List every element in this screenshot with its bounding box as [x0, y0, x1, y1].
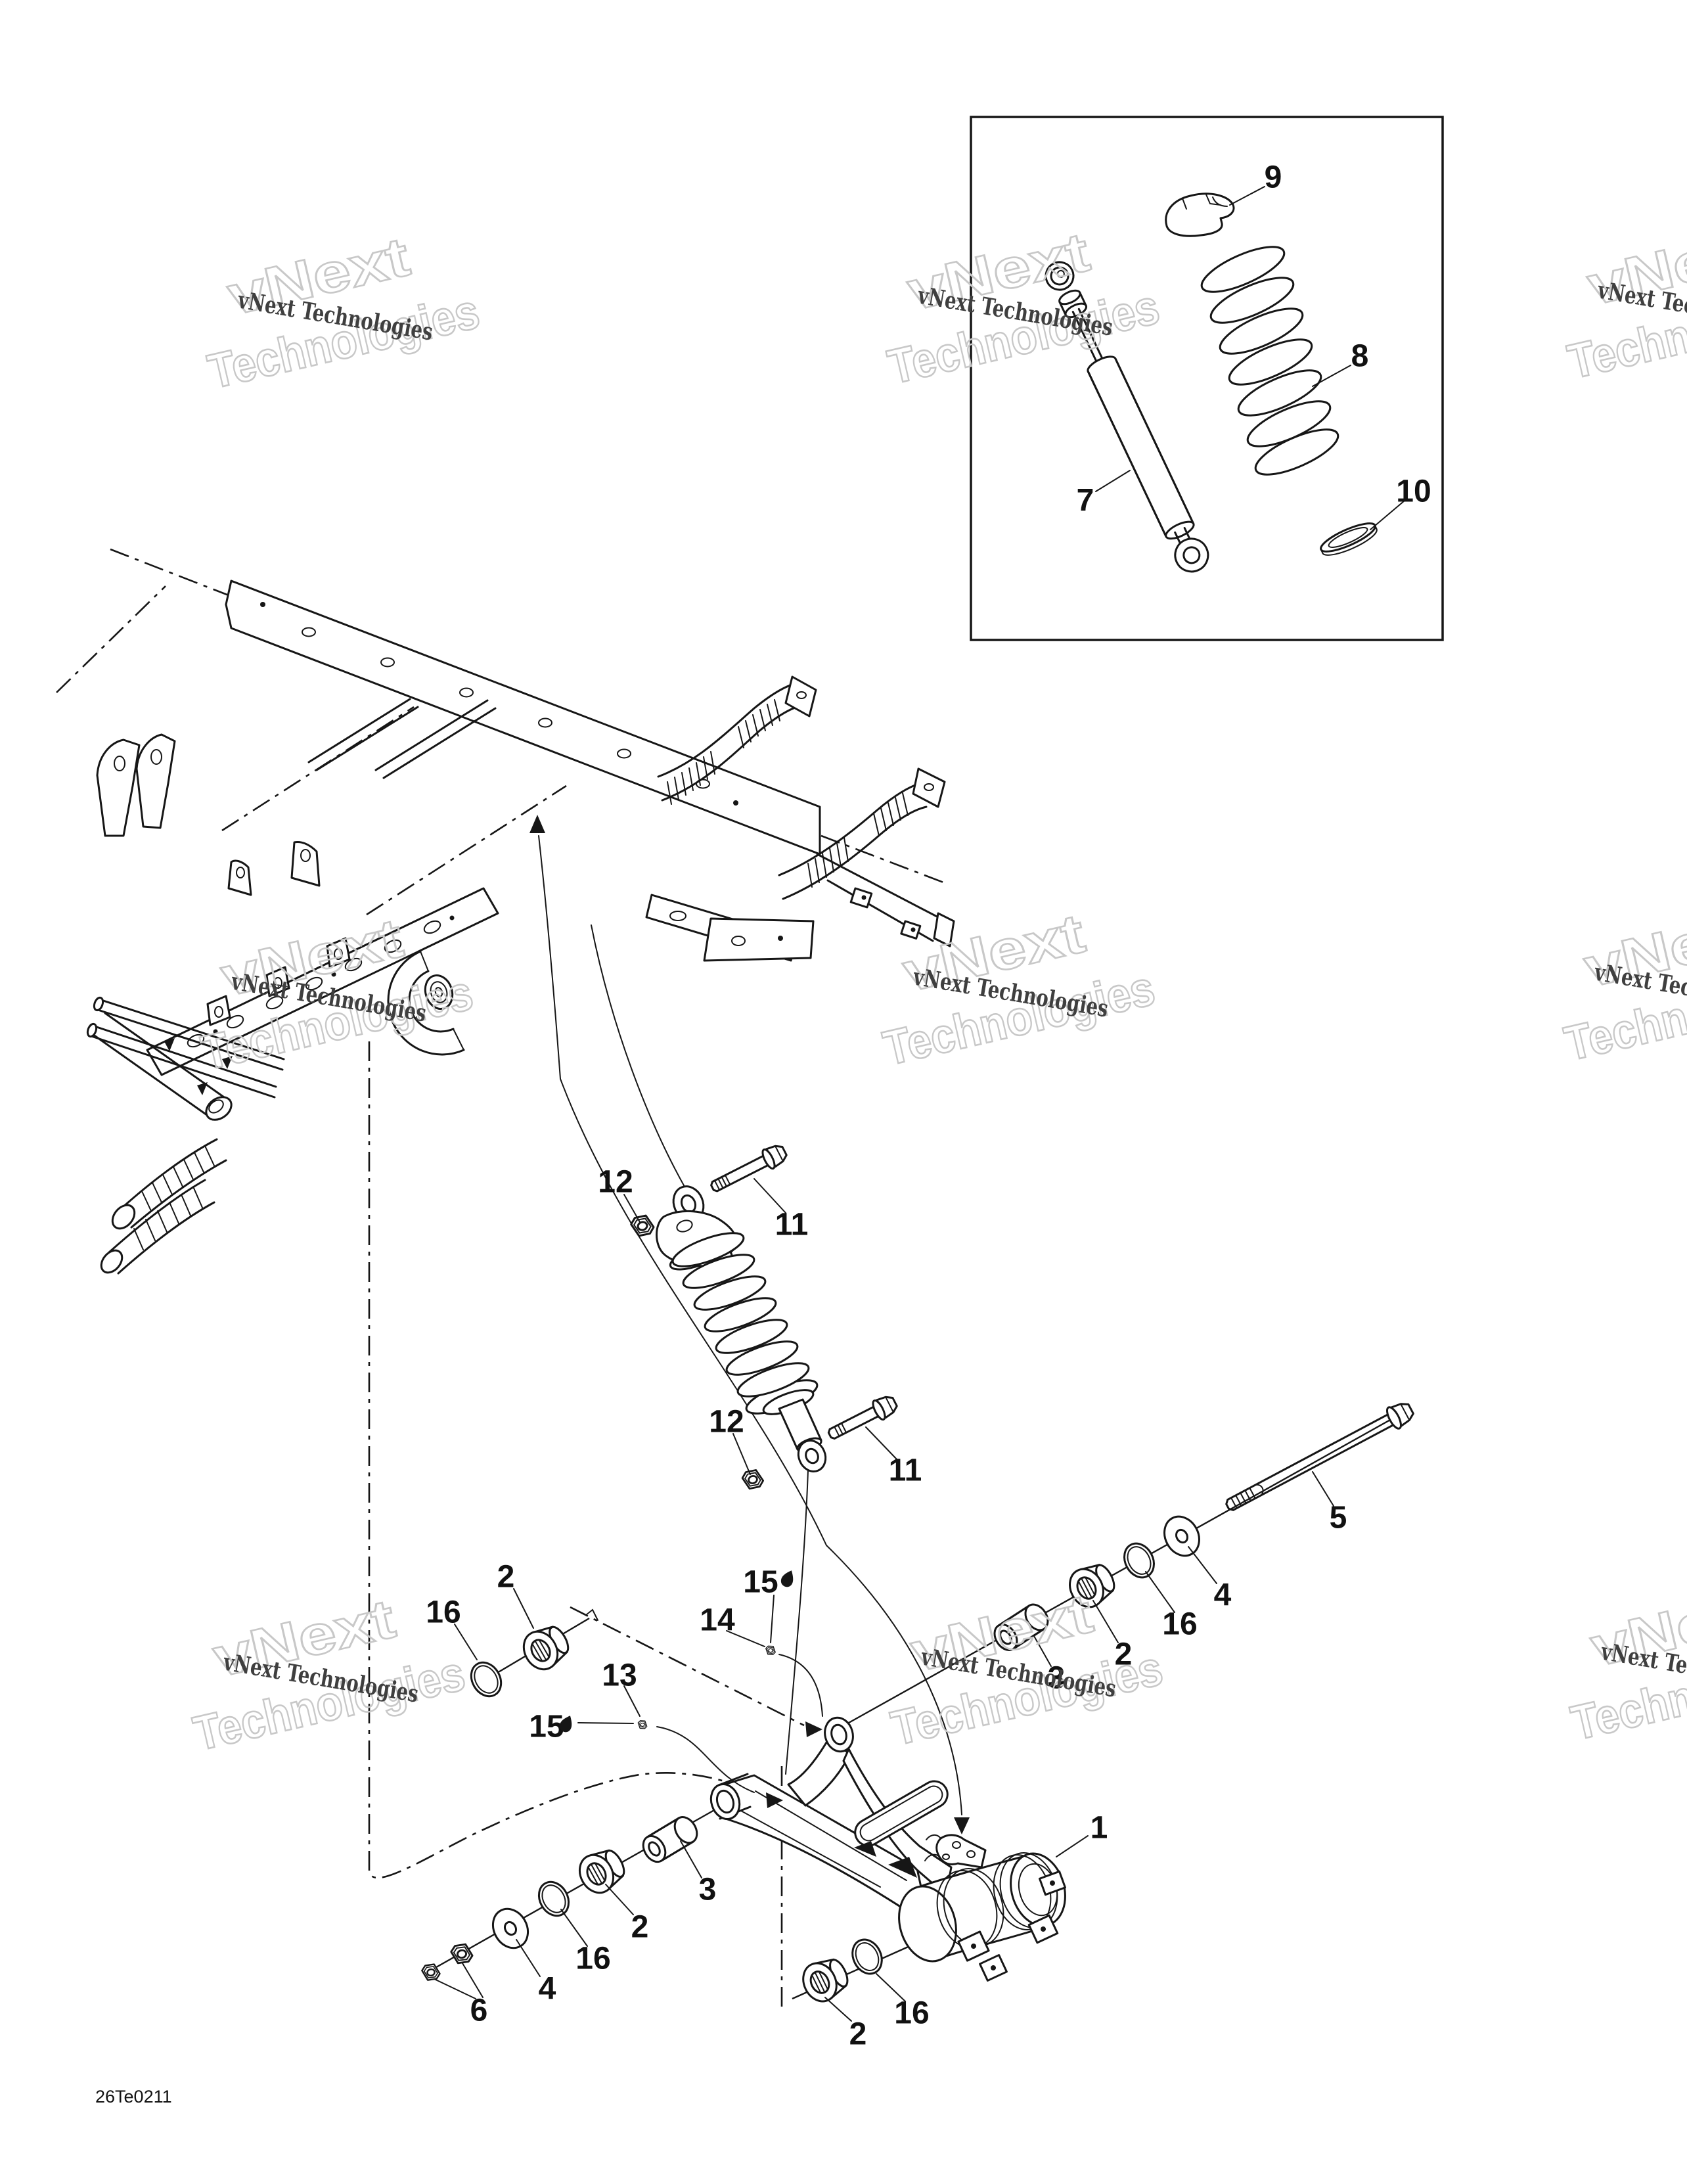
watermark: vNextTechnologiesvNext Technologies	[1546, 203, 1687, 390]
part-callout-1: 1	[1091, 1811, 1108, 1846]
watermark: vNextTechnologiesvNext Technologies	[1550, 1564, 1687, 1751]
shock-bolt-bottom	[825, 1392, 899, 1444]
part-callout-2: 2	[631, 1910, 649, 1945]
part-callout-12: 12	[598, 1165, 633, 1200]
shock-nut-bottom	[741, 1468, 764, 1490]
part-callout-15: 15	[743, 1565, 778, 1600]
doc-code: 26Te0211	[95, 2087, 172, 2106]
part-callout-4: 4	[1214, 1578, 1232, 1613]
part-callout-9: 9	[1265, 160, 1282, 195]
coil-spring-inset	[1196, 238, 1343, 484]
bushing-pair-upper-left	[465, 1618, 589, 1702]
bushing	[797, 1953, 853, 2007]
watermark: vNextTechnologiesvNext Technologies	[1543, 885, 1687, 1072]
coil-over-shock	[630, 1141, 900, 1490]
part-callout-16: 16	[426, 1595, 461, 1630]
watermark-layer: vNextTechnologiesvNext TechnologiesvNext…	[172, 203, 1687, 1762]
o-ring	[533, 1877, 575, 1921]
pivot-hardware-chain-left	[421, 1807, 720, 1982]
bushing	[517, 1620, 574, 1675]
bushing	[573, 1843, 630, 1898]
part-callout-7: 7	[1077, 484, 1094, 518]
inset-box	[971, 117, 1443, 640]
part-callout-11: 11	[775, 1208, 809, 1242]
shock-bolt-top	[708, 1141, 789, 1196]
part-callout-2: 2	[849, 2017, 867, 2052]
part-callout-2: 2	[497, 1560, 515, 1595]
exploded-parts-drawing: 9871012111211541623216151413151321646162…	[0, 0, 1687, 2184]
part-callout-5: 5	[1330, 1501, 1347, 1536]
part-callout-8: 8	[1351, 339, 1369, 374]
grease-fitting	[766, 1646, 775, 1654]
watermark: vNextTechnologiesvNext Technologies	[862, 890, 1159, 1076]
pivot-bolt	[1222, 1398, 1416, 1516]
part-callout-3: 3	[699, 1873, 717, 1907]
washer	[486, 1903, 535, 1954]
watermark: vNextTechnologiesvNext Technologies	[187, 213, 484, 399]
part-callout-16: 16	[1162, 1607, 1197, 1642]
o-ring	[1119, 1538, 1159, 1582]
right-arrow	[805, 1721, 822, 1737]
watermark: vNextTechnologiesvNext Technologies	[172, 1575, 470, 1762]
part-callout-16: 16	[575, 1942, 610, 1976]
parts-diagram-page: 9871012111211541623216151413151321646162…	[0, 0, 1687, 2184]
watermark: vNextTechnologiesvNext Technologies	[870, 1570, 1167, 1756]
part-callout-10: 10	[1396, 474, 1431, 509]
grease-fitting	[638, 1721, 646, 1729]
rubber-stopper	[1166, 194, 1234, 236]
washer	[1158, 1511, 1205, 1562]
spring-seat	[1318, 518, 1380, 560]
part-callout-15: 15	[529, 1710, 564, 1744]
part-callout-14: 14	[700, 1603, 735, 1638]
frame-assembly	[56, 549, 954, 1277]
part-callout-4: 4	[539, 1972, 556, 2007]
down-arrow	[954, 1817, 970, 1834]
spacer-sleeve	[639, 1813, 701, 1865]
grease-drop-icon	[779, 1568, 796, 1589]
part-callout-6: 6	[470, 1993, 488, 2028]
up-arrow	[529, 815, 545, 833]
nut	[450, 1943, 473, 1965]
o-ring	[465, 1657, 506, 1702]
part-callout-13: 13	[602, 1658, 637, 1693]
part-callout-12: 12	[709, 1405, 744, 1440]
part-callout-16: 16	[894, 1996, 929, 2031]
part-callout-11: 11	[889, 1453, 922, 1488]
shock-nut-top	[630, 1214, 655, 1237]
